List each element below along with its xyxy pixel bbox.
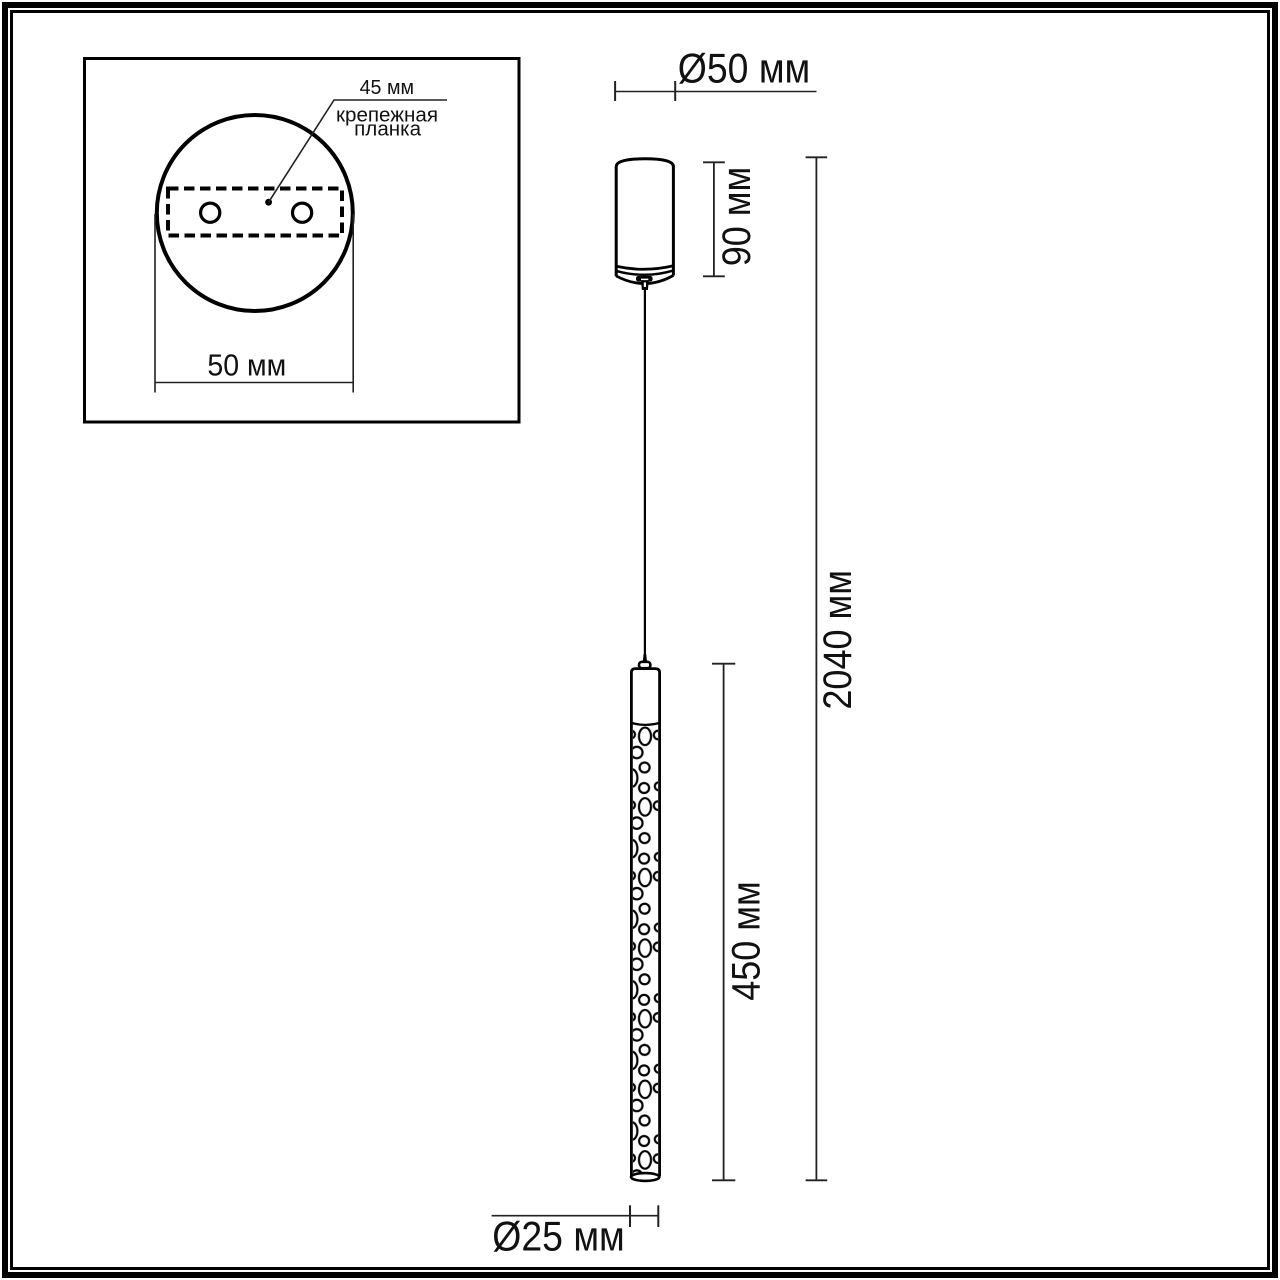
svg-text:2040 мм: 2040 мм <box>816 570 860 710</box>
svg-text:90 мм: 90 мм <box>715 167 759 267</box>
svg-text:45 мм: 45 мм <box>360 77 414 99</box>
svg-text:450 мм: 450 мм <box>725 881 769 1001</box>
svg-text:Ø25 мм: Ø25 мм <box>492 1214 624 1260</box>
svg-text:Ø50 мм: Ø50 мм <box>678 46 810 92</box>
svg-text:планка: планка <box>354 119 422 141</box>
svg-text:50 мм: 50 мм <box>207 349 286 383</box>
